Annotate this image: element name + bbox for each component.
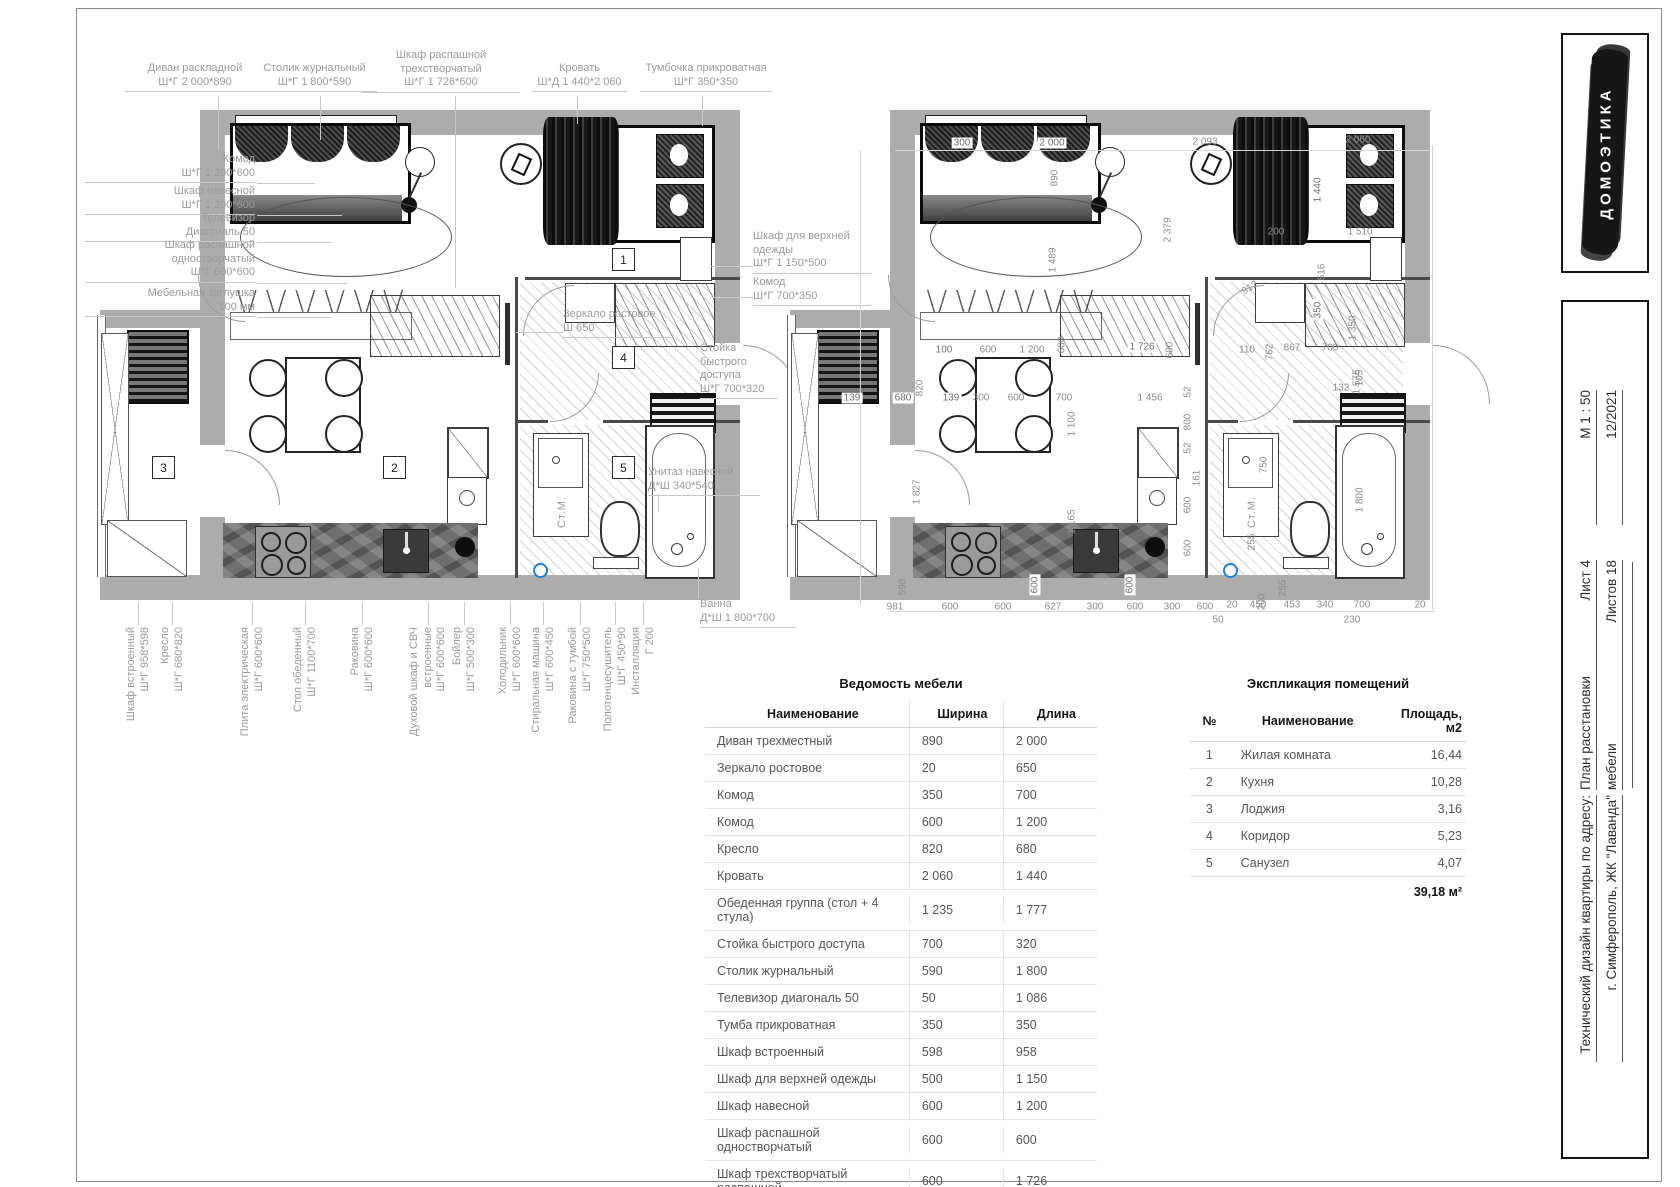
callout-name: Кресло: [159, 627, 171, 664]
table-row: 2Кухня10,28: [1190, 769, 1466, 796]
table-cell: 590: [909, 958, 1003, 984]
callout-name: Раковина: [349, 627, 361, 675]
logo-text: ДОМОЭТИКА: [1598, 86, 1615, 219]
table-cell: 598: [909, 1039, 1003, 1065]
blank-field-line: [1632, 652, 1633, 788]
dimension-label: 600: [1165, 342, 1176, 359]
stool-chair: [500, 143, 542, 185]
callout-dims: Ш*Г 750*500: [580, 627, 594, 792]
washing-machine-column: Ст.М.: [1223, 433, 1279, 537]
callout-name: Комод: [753, 276, 785, 288]
wall: [715, 110, 740, 343]
dimension-label: 516: [1317, 264, 1328, 281]
dimension-label: 139: [941, 393, 962, 404]
dimension-label: 1 200: [1019, 345, 1044, 356]
table-cell: 50: [909, 985, 1003, 1011]
dimension-label: 20: [1414, 600, 1425, 611]
callout-right-5: ВаннаД*Ш 1 800*700: [700, 598, 796, 628]
table-row: Комод350700: [705, 782, 1097, 809]
table-cell: Коридор: [1229, 823, 1375, 849]
table-cell: 600: [909, 1168, 1003, 1187]
table-cell: 4,07: [1375, 850, 1466, 876]
table-cell: 650: [1003, 755, 1097, 781]
table-row: Диван трехместный8902 000: [705, 728, 1097, 755]
room-number-5: 5: [612, 456, 635, 479]
partition: [515, 277, 518, 423]
table-cell: Санузел: [1229, 850, 1375, 876]
table-cell: 958: [1003, 1039, 1097, 1065]
wall: [200, 517, 225, 577]
table-row: 5Санузел4,07: [1190, 850, 1466, 877]
callout-dims: Ш*Г 1 200*600: [85, 199, 255, 213]
table-cell: 700: [909, 931, 1003, 957]
callout-name: Шкаф встроенный: [125, 627, 137, 721]
callout-dims: Ш*Г 1 200*600: [85, 167, 255, 181]
table-row: Стойка быстрого доступа700320: [705, 931, 1097, 958]
callout-name: Стиральная машина: [530, 627, 542, 733]
callout-name: Кровать: [559, 62, 600, 74]
table-cell: 600: [1003, 1127, 1097, 1153]
dimension-label: 20: [1226, 600, 1237, 611]
callout-top-0: Диван раскладнойШ*Г 2 000*890: [125, 62, 265, 92]
table-row: Столик журнальный5901 800: [705, 958, 1097, 985]
table-cell: 500: [909, 1066, 1003, 1092]
dimension-label: 700: [1056, 393, 1073, 404]
callout-dims: Ш*Г 500*300: [464, 627, 478, 792]
table-cell: 1 235: [909, 897, 1003, 923]
leader-line: [252, 602, 253, 625]
dimension-label: 100: [934, 345, 955, 356]
dimension-label: 139: [842, 393, 863, 404]
callout-name: Холодильник: [497, 627, 509, 694]
callout-top-4: Тумбочка прикроватнаяШ*Г 350*350: [640, 62, 772, 92]
table-cell: 600: [909, 1127, 1003, 1153]
dimension-label: 450: [1250, 600, 1267, 611]
stove: [255, 526, 311, 578]
table-cell: Жилая комната: [1229, 742, 1375, 768]
table-cell: Комод: [705, 809, 909, 835]
leader-line: [658, 494, 659, 512]
table-cell: Шкаф для верхней одежды: [705, 1066, 909, 1092]
table-cell: 10,28: [1375, 769, 1466, 795]
table-cell: 16,44: [1375, 742, 1466, 768]
leader-line: [257, 283, 347, 284]
callout-dims: Д*Ш 340*540: [648, 480, 760, 494]
table-cell: Кровать: [705, 863, 909, 889]
table-cell: Шкаф навесной: [705, 1093, 909, 1119]
drain-point: [1223, 563, 1238, 578]
callout-right-3: Стойка быстрого доступаШ*Г 700*320: [700, 342, 778, 399]
dining-chair: [1015, 359, 1053, 397]
table-cell: Тумба прикроватная: [705, 1012, 909, 1038]
leader-line: [172, 602, 173, 625]
table-cell: 820: [909, 836, 1003, 862]
toilet-bench: [1283, 557, 1329, 569]
dimension-label: 255: [1247, 534, 1258, 551]
mirror: [1195, 303, 1200, 365]
dimension-label: 300: [973, 393, 990, 404]
leader-line: [698, 568, 699, 598]
table-cell: 600: [909, 1093, 1003, 1119]
drawing-sheet: Ст.М.: [0, 0, 1680, 1187]
callout-left-4: Мебельная заглушка100 мм: [85, 287, 255, 317]
table-cell: Столик журнальный: [705, 958, 909, 984]
table-cell: 890: [909, 728, 1003, 754]
callout-dims: Ш*Г 1100*700: [305, 627, 319, 792]
dimension-label: 820: [915, 380, 926, 397]
table-cell: 350: [909, 1012, 1003, 1038]
table-cell: 1 800: [1003, 958, 1097, 984]
fridge: [447, 427, 489, 479]
leader-line: [643, 602, 644, 625]
washer-label: Ст.М.: [556, 496, 568, 528]
dimension-label: 600: [1057, 337, 1068, 354]
dimension-label: 2 379: [1163, 217, 1174, 242]
wall: [1405, 110, 1430, 343]
table-cell: 350: [909, 782, 1003, 808]
table-cell: 1 150: [1003, 1066, 1097, 1092]
leader-line: [543, 602, 544, 625]
drain-point: [533, 563, 548, 578]
callout-dims: Ш*Г 600*600: [252, 627, 266, 792]
wall: [890, 517, 915, 577]
callout-name: Диван раскладной: [148, 62, 243, 74]
dimension-label: 132: [1333, 383, 1350, 394]
table-row: Кровать2 0601 440: [705, 863, 1097, 890]
dimension-label: 255: [1278, 580, 1289, 597]
dining-chair: [939, 359, 977, 397]
callout-right-2: Зеркало ростовоеШ 650: [563, 308, 671, 338]
leader-line: [615, 602, 616, 625]
dimension-label: 300: [1087, 602, 1104, 613]
dimension-label: 890: [1050, 170, 1061, 187]
table-row: Комод6001 200: [705, 809, 1097, 836]
callout-dims: Ш*Г 700*350: [753, 290, 871, 304]
callout-left-1: Шкаф навеснойШ*Г 1 200*600: [85, 185, 255, 215]
table-cell: 4: [1190, 823, 1229, 849]
table-row: Кресло820680: [705, 836, 1097, 863]
leader-line: [257, 183, 315, 184]
table-cell: 600: [909, 809, 1003, 835]
dimension-label: 598: [898, 579, 909, 596]
wall: [890, 310, 915, 445]
armchair: [127, 330, 189, 404]
table-row: Шкаф встроенный598958: [705, 1039, 1097, 1066]
washing-machine-column: Ст.М.: [533, 433, 589, 537]
callout-dims: Ш*Г 2 000*890: [125, 76, 265, 90]
dimension-label: 762: [1265, 344, 1276, 361]
leader-line: [464, 602, 465, 625]
dimension-label: 1 827: [912, 479, 923, 504]
dimension-label: 600: [1197, 602, 1214, 613]
table-cell: 350: [1003, 1012, 1097, 1038]
leader-line: [218, 96, 219, 150]
partition: [518, 420, 548, 423]
callout-name: Шкаф распашной трехстворчатый: [396, 49, 486, 75]
door-arc: [225, 450, 280, 505]
table-cell: 5,23: [1375, 823, 1466, 849]
dimension-label: 105: [1355, 370, 1366, 387]
kitchen-sink: [1073, 529, 1119, 573]
rug-oval: [930, 197, 1142, 277]
dimension-label: 1 726: [1127, 342, 1156, 353]
table-cell: 1 440: [1003, 863, 1097, 889]
dining-chair: [249, 359, 287, 397]
table-row: Обеденная группа (стол + 4 стула)1 2351 …: [705, 890, 1097, 931]
callout-name: Инсталляция: [630, 627, 642, 695]
leader-line: [510, 602, 511, 625]
callout-name: Шкаф навесной: [174, 185, 255, 197]
dimension-label: 700: [1354, 600, 1371, 611]
dimension-label: 600: [1183, 497, 1194, 514]
table-row: Шкаф трехстворчатый распашной6001 726: [705, 1161, 1097, 1187]
nightstand: [1370, 237, 1402, 281]
callout-dims: Ш*Д 1 440*2 060: [532, 76, 627, 90]
table-cell: 2 000: [1003, 728, 1097, 754]
oven-microwave-column: [447, 477, 487, 525]
table-cell: 20: [909, 755, 1003, 781]
callout-dims: Ш*Г 1 726*600: [362, 76, 520, 90]
dimension-label: 200: [1268, 227, 1285, 238]
dimension-label: 1 510: [1347, 227, 1372, 238]
table-cell: 1: [1190, 742, 1229, 768]
toilet: [600, 501, 640, 557]
table-cell: 1 726: [1003, 1168, 1097, 1187]
dimension-label: 600: [980, 345, 997, 356]
floor-plan-right: Ст.М.: [785, 105, 1435, 605]
table-cell: 5: [1190, 850, 1229, 876]
table-row: Шкаф для верхней одежды5001 150: [705, 1066, 1097, 1093]
dimension-label: 1 350: [1348, 315, 1359, 340]
callout-dims: Ш*Г 1 150*500: [753, 257, 871, 271]
leader-line: [516, 332, 563, 333]
dimension-label: 600: [1008, 393, 1025, 404]
explication-table-title: Экспликация помещений: [1190, 676, 1466, 691]
table-row: Зеркало ростовое20650: [705, 755, 1097, 782]
kettle-icon: [455, 537, 475, 557]
callout-dims: Ш*Г 350*350: [640, 76, 772, 90]
leader-line: [257, 215, 342, 216]
callout-dims: Ш*Г 600*450: [543, 627, 557, 792]
callout-name: Духовой шкаф и СВЧ встроенные: [408, 627, 434, 736]
dining-chair: [325, 359, 363, 397]
logo-box: ДОМОЭТИКА: [1561, 33, 1649, 273]
callout-dims: Ш*Г 680*820: [172, 627, 186, 792]
dimension-label: 1 440: [1313, 175, 1324, 204]
table-cell: Комод: [705, 782, 909, 808]
rug-oval: [240, 197, 452, 277]
callout-name: Зеркало ростовое: [563, 308, 656, 320]
callout-dims: Ш*Г 600*600: [85, 266, 255, 280]
callout-name: Раковина с тумбой: [567, 627, 579, 723]
leader-line: [710, 297, 753, 298]
table-row: Телевизор диагональ 50501 086: [705, 985, 1097, 1012]
table-cell: 1 086: [1003, 985, 1097, 1011]
dimension-label: 600: [942, 602, 959, 613]
callout-right-1: КомодШ*Г 700*350: [753, 276, 871, 306]
callout-name: Унитаз навесной: [648, 466, 734, 478]
explication-table: Экспликация помещений № Наименование Пло…: [1190, 676, 1466, 899]
kettle-icon: [1145, 537, 1165, 557]
oven-microwave-column: [1137, 477, 1177, 525]
callout-name: Бойлер: [451, 627, 463, 665]
furniture-table: Ведомость мебели Наименование Ширина Дли…: [705, 676, 1097, 1187]
room-number-4: 4: [612, 346, 635, 369]
partition: [1205, 420, 1208, 578]
callout-dims: Ш*Г 600*600: [435, 627, 449, 792]
table-row: Шкаф навесной6001 200: [705, 1093, 1097, 1120]
callout-right-4: Унитаз навеснойД*Ш 340*540: [648, 466, 760, 496]
dining-chair: [939, 415, 977, 453]
callout-top-3: КроватьШ*Д 1 440*2 060: [532, 62, 627, 92]
leader-line: [455, 96, 456, 288]
table-cell: Диван трехместный: [705, 728, 909, 754]
leader-line: [428, 602, 429, 625]
table-cell: Шкаф распашной одностворчатый: [705, 1120, 909, 1160]
wall: [715, 405, 740, 600]
table-cell: 680: [1003, 836, 1097, 862]
nightstand: [680, 237, 712, 281]
dimension-label: 161: [1192, 470, 1203, 487]
dimension-label: 1 800: [1355, 487, 1366, 512]
table-cell: 2: [1190, 769, 1229, 795]
callout-dims: Г 200: [643, 627, 657, 792]
dimension-label: 52: [1183, 442, 1194, 453]
dimension-label: 300: [1164, 602, 1181, 613]
callout-top-1: Столик журнальныйШ*Г 1 800*590: [252, 62, 377, 92]
table-row: Тумба прикроватная350350: [705, 1012, 1097, 1039]
callout-name: Шкаф распашной одностворчатый: [165, 239, 255, 265]
table-row: 4Коридор5,23: [1190, 823, 1466, 850]
dimension-label: 1 456: [1137, 393, 1162, 404]
callout-dims: Ш 650: [563, 322, 671, 336]
leader-line: [702, 96, 703, 126]
doc-title-line2: мебели: [1604, 645, 1623, 790]
callout-left-3: Шкаф распашной одностворчатыйШ*Г 600*600: [85, 239, 255, 283]
leader-line: [362, 602, 363, 625]
dimension-label: 867: [1284, 343, 1301, 354]
dimension-label: 600: [995, 602, 1012, 613]
callout-left-0: КомодШ*Г 1 200*600: [85, 153, 255, 183]
toilet-bench: [593, 557, 639, 569]
table-cell: 700: [1003, 782, 1097, 808]
wall: [200, 310, 225, 445]
room-number-3: 3: [152, 456, 175, 479]
built-in-wardrobe: [101, 333, 129, 525]
dimension-label: 680: [893, 393, 914, 404]
table-cell: 2 060: [909, 863, 1003, 889]
dimension-label: 750: [1259, 457, 1270, 474]
table-cell: 3,16: [1375, 796, 1466, 822]
total-area: 39,18 м²: [1190, 877, 1466, 899]
callout-top-2: Шкаф распашной трехстворчатыйШ*Г 1 726*6…: [362, 49, 520, 93]
leader-line: [577, 96, 578, 124]
leader-line: [257, 317, 332, 318]
dimension-label: 600: [1125, 575, 1136, 596]
fridge: [1137, 427, 1179, 479]
scale-label: М 1 : 50: [1578, 390, 1597, 525]
explication-table-header: № Наименование Площадь, м2: [1190, 701, 1466, 742]
bathtub: [645, 425, 715, 579]
stove: [945, 526, 1001, 578]
bed-canopy: [543, 117, 619, 245]
callout-dims: Ш*Г 600*600: [510, 627, 524, 792]
callout-name: Стол обеденный: [292, 627, 304, 712]
wardrobe-three-door: [370, 295, 500, 357]
kitchen-sink: [383, 529, 429, 573]
partition: [1205, 277, 1208, 423]
callout-name: Телевизор: [201, 212, 255, 224]
project-address-line1: Технический дизайн квартиры по адресу:: [1578, 795, 1597, 1062]
leader-line: [580, 602, 581, 625]
dimension-label: 627: [1045, 602, 1062, 613]
dining-chair: [325, 415, 363, 453]
dimension-label: 800: [1183, 414, 1194, 431]
dimension-label: 453: [1284, 600, 1301, 611]
dimension-label: 700: [1322, 343, 1339, 354]
dimension-label: 2 000: [1037, 138, 1066, 149]
callout-name: Мебельная заглушка: [148, 287, 255, 299]
built-in-wardrobe: [791, 333, 819, 525]
table-cell: Телевизор диагональ 50: [705, 985, 909, 1011]
dimension-label: 350: [1313, 300, 1324, 321]
blank-field-line: [1632, 562, 1633, 658]
table-cell: Зеркало ростовое: [705, 755, 909, 781]
callout-name: Комод: [223, 153, 255, 165]
dimension-label: 1 165: [1067, 509, 1078, 534]
table-cell: Лоджия: [1229, 796, 1375, 822]
toilet: [1290, 501, 1330, 557]
dimension-label: 1 100: [1067, 411, 1078, 436]
table-cell: Кресло: [705, 836, 909, 862]
furniture-table-title: Ведомость мебели: [705, 676, 1097, 691]
callout-dims: Ш*Г 958*598: [138, 627, 152, 792]
callout-name: Плита электрическая: [239, 627, 251, 736]
callout-name: Столик журнальный: [263, 62, 366, 74]
callout-name: Тумбочка прикроватная: [645, 62, 766, 74]
leader-line: [138, 602, 139, 625]
callout-name: Полотенцесушитель: [602, 627, 614, 731]
dimension-label: 50: [1212, 615, 1223, 626]
partition: [1208, 420, 1238, 423]
callout-right-0: Шкаф для верхней одеждыШ*Г 1 150*500: [753, 230, 871, 274]
wall: [790, 575, 1430, 600]
dimension-label: 1 489: [1048, 247, 1059, 272]
table-cell: Стойка быстрого доступа: [705, 931, 909, 957]
room-number-1: 1: [612, 248, 635, 271]
project-address-line2: г. Симферополь, ЖК "Лаванда": [1604, 795, 1623, 1062]
room-number-2: 2: [383, 456, 406, 479]
leader-line: [710, 266, 753, 267]
table-cell: Кухня: [1229, 769, 1375, 795]
dimension-label: 340: [1317, 600, 1334, 611]
washer-label: Ст.М.: [1246, 496, 1258, 528]
partition: [515, 420, 518, 578]
table-row: Шкаф распашной одностворчатый600600: [705, 1120, 1097, 1161]
callout-dims: 100 мм: [85, 301, 255, 315]
callout-dims: Д*Ш 1 800*700: [700, 612, 796, 626]
dimension-label: 52: [1183, 386, 1194, 397]
dimension-label: 2 093: [1192, 137, 1217, 148]
callout-name: Стойка быстрого доступа: [700, 342, 747, 381]
table-row: 1Жилая комната16,44: [1190, 742, 1466, 769]
dining-chair: [1015, 415, 1053, 453]
callout-dims: Диагональ 50: [85, 226, 255, 240]
mirror: [505, 303, 510, 365]
callout-left-2: ТелевизорДиагональ 50: [85, 212, 255, 242]
callout-dims: Ш*Г 1 800*590: [252, 76, 377, 90]
table-cell: 1 777: [1003, 897, 1097, 923]
